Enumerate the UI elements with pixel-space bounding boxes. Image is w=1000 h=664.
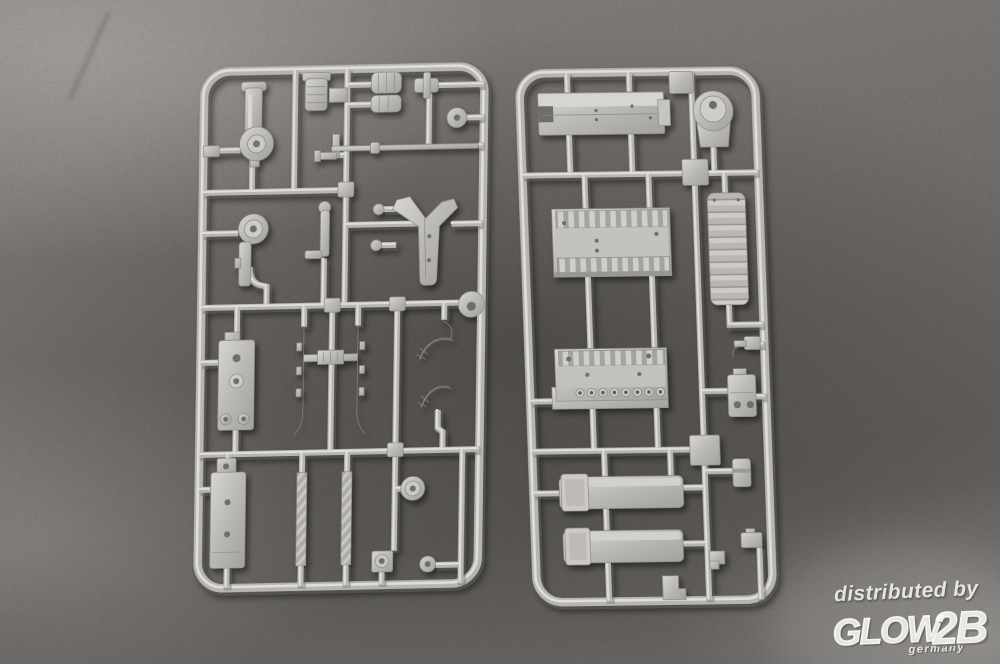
left-sprue bbox=[188, 57, 494, 598]
distributor-watermark: distributed by GLOW2B germany bbox=[831, 578, 988, 660]
engine-block-part bbox=[550, 348, 668, 410]
runner-pad bbox=[689, 435, 720, 465]
step-bracket-part bbox=[662, 576, 686, 600]
small-box-part bbox=[372, 551, 393, 572]
right-sprue bbox=[511, 62, 782, 610]
curved-hose-part bbox=[418, 386, 451, 409]
tee-block-part bbox=[741, 528, 763, 547]
watermark-logo-suffix: 2B bbox=[932, 601, 988, 654]
ball-fitting-part bbox=[373, 204, 384, 215]
ribbed-cylinder-part bbox=[302, 72, 348, 111]
flanged-disc-part bbox=[447, 107, 467, 127]
turbocharger-part bbox=[239, 82, 274, 168]
y-manifold-part bbox=[392, 196, 458, 286]
lower-tank-block-part bbox=[210, 458, 247, 569]
small-disc-part bbox=[420, 556, 436, 572]
photo-scene: distributed by GLOW2B germany bbox=[0, 0, 1000, 664]
angle-bracket-part bbox=[710, 551, 726, 569]
ribbed-panel-part bbox=[707, 193, 749, 306]
track-rail-part bbox=[296, 472, 352, 566]
curved-hose-part bbox=[417, 322, 455, 361]
engine-block-part bbox=[552, 208, 672, 278]
ball-fitting-part bbox=[371, 240, 382, 251]
round-bracket-part bbox=[458, 291, 484, 318]
tee-fitting-part bbox=[414, 72, 438, 98]
ribbed-drum-parts bbox=[371, 72, 402, 113]
stowage-box-part bbox=[559, 473, 684, 512]
canister-part bbox=[732, 459, 751, 487]
road-wheel-part bbox=[401, 476, 425, 500]
gearbox-bracket-part bbox=[727, 368, 757, 416]
runner-pad bbox=[682, 159, 709, 185]
vertical-pipe-part bbox=[305, 201, 331, 259]
turret-base-part bbox=[692, 91, 734, 148]
roof-beam-part bbox=[538, 92, 671, 136]
runner-pad bbox=[389, 297, 405, 311]
edge-pad-part bbox=[203, 146, 219, 157]
right-sprue-frame bbox=[518, 69, 775, 605]
tank-block-part bbox=[218, 332, 255, 431]
runner-pad bbox=[338, 182, 354, 197]
faucet-fitting-part bbox=[732, 336, 761, 357]
runner-pad bbox=[324, 298, 340, 312]
stowage-box-part bbox=[563, 527, 684, 566]
long-rod-part bbox=[331, 140, 478, 154]
square-plate-part bbox=[669, 71, 694, 93]
runner-pad bbox=[387, 443, 403, 457]
